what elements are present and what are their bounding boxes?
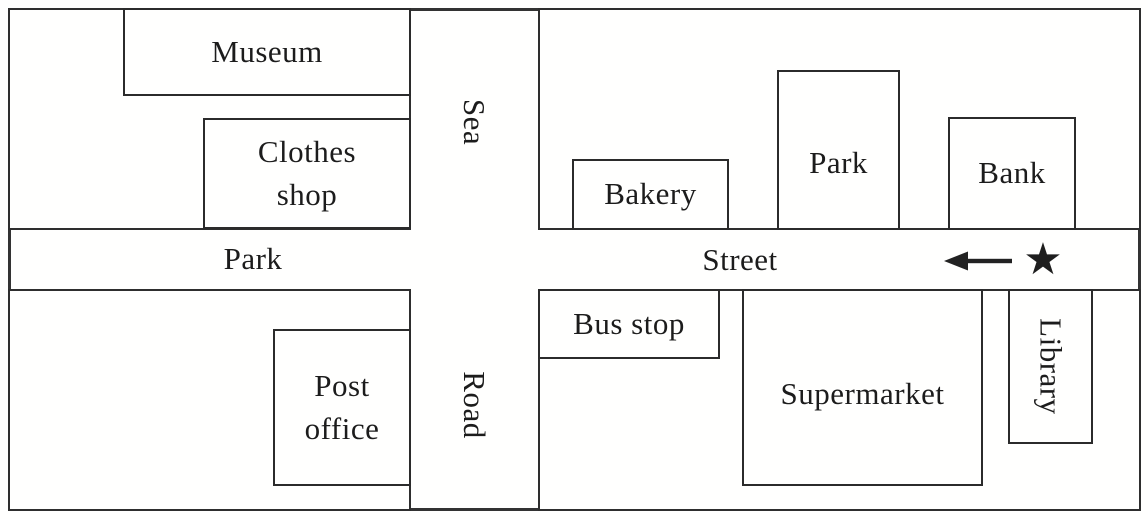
post-office-label-line2: office [305, 408, 380, 451]
bank-building: Bank [948, 117, 1076, 230]
bank-label: Bank [978, 152, 1045, 195]
bus-stop-building: Bus stop [538, 289, 720, 359]
park-area: Park [777, 70, 900, 230]
post-office-label-line1: Post [314, 365, 369, 408]
post-office-building: Post office [273, 329, 411, 486]
road-name-road: Road [456, 371, 492, 438]
museum-building: Museum [123, 8, 411, 96]
library-label: Library [1029, 318, 1072, 414]
supermarket-building: Supermarket [742, 289, 983, 486]
star-icon: ★ [1023, 238, 1062, 282]
road-name-sea: Sea [456, 99, 492, 145]
clothes-shop-building: Clothes shop [203, 118, 411, 229]
museum-label: Museum [211, 31, 323, 74]
supermarket-label: Supermarket [781, 373, 945, 416]
bus-stop-label: Bus stop [573, 303, 685, 346]
street-name-park: Park [224, 241, 283, 277]
left-arrow-icon [942, 249, 1014, 273]
clothes-shop-label-line1: Clothes [258, 131, 356, 174]
street-name-street: Street [702, 242, 777, 278]
park-label: Park [809, 142, 868, 185]
town-map: Museum Clothes shop Bakery Park Bank Pos… [0, 0, 1148, 519]
library-building: Library [1008, 289, 1093, 444]
clothes-shop-label-line2: shop [277, 174, 338, 217]
bakery-label: Bakery [604, 173, 697, 216]
bakery-building: Bakery [572, 159, 729, 230]
